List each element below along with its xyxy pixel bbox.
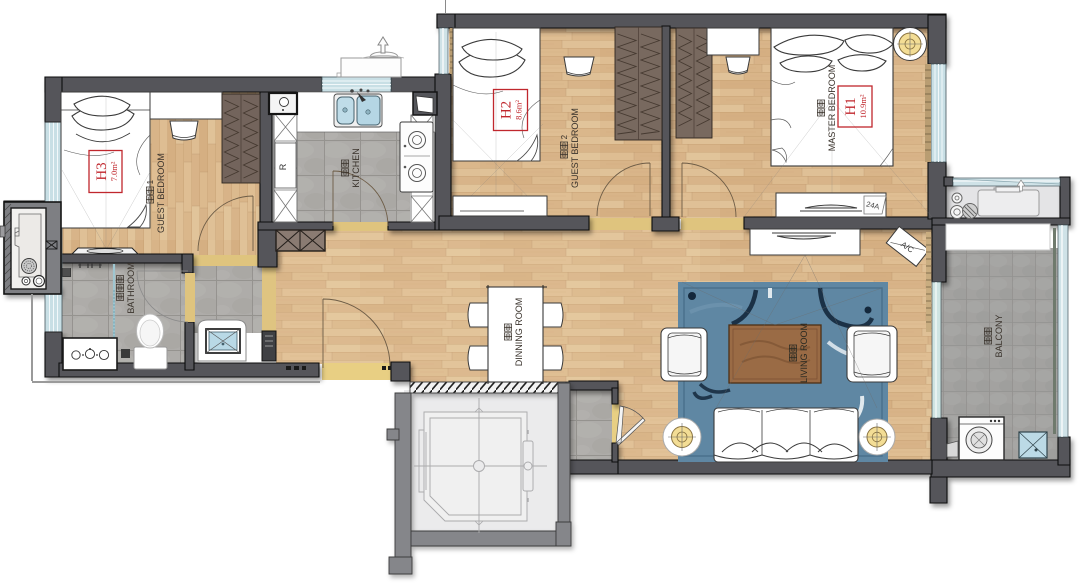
svg-text:GUEST BEDROOM: GUEST BEDROOM (570, 108, 580, 188)
svg-text:MASTER BEDROOM: MASTER BEDROOM (827, 65, 837, 152)
svg-text:H3: H3 (94, 162, 110, 180)
svg-text:DINNING ROOM: DINNING ROOM (514, 298, 524, 367)
svg-text:H2: H2 (499, 101, 515, 119)
svg-text:KITCHEN: KITCHEN (351, 148, 361, 188)
svg-text:LIVING ROOM: LIVING ROOM (799, 323, 809, 383)
svg-text:2: 2 (560, 134, 569, 139)
svg-text:8.6m²: 8.6m² (514, 100, 524, 120)
svg-text:1: 1 (146, 179, 155, 184)
svg-text:R: R (278, 163, 288, 170)
svg-text:BATHROOM: BATHROOM (126, 262, 136, 313)
svg-text:GUEST BEDROOM: GUEST BEDROOM (156, 153, 166, 233)
svg-text:10.9m²: 10.9m² (858, 94, 868, 118)
svg-text:H1: H1 (843, 97, 859, 115)
svg-text:BALCONY: BALCONY (994, 314, 1004, 357)
svg-text:7.0m²: 7.0m² (109, 161, 119, 181)
